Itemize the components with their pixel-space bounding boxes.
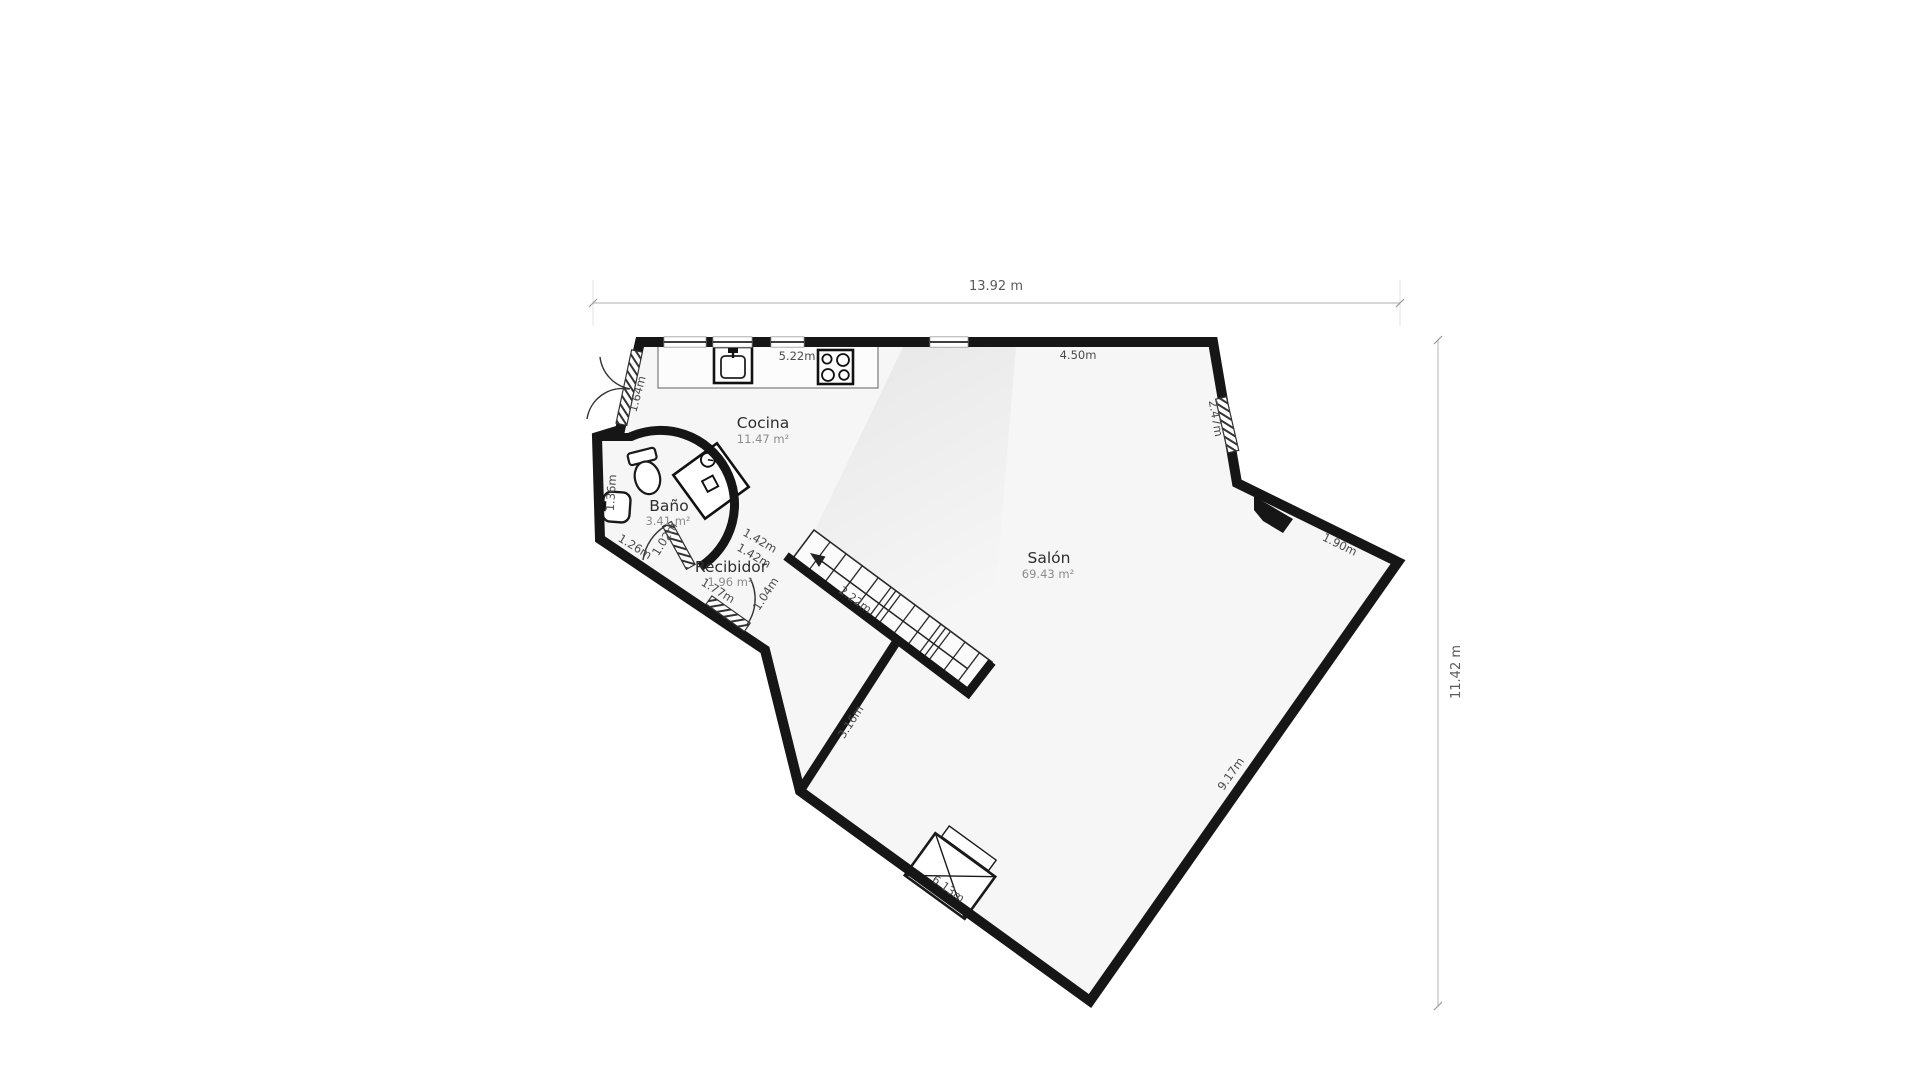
floor-plan-page: 13.92 m 11.42 m 5.22m 4.50m 1.64m 2.47m …	[0, 0, 1920, 1080]
window-icon	[930, 337, 968, 347]
window-icon	[664, 337, 706, 347]
kitchen-counter	[658, 346, 878, 388]
dim-bano-west-wall: 1.36m	[603, 474, 620, 512]
dim-top-window-wall: 5.22m	[779, 349, 816, 363]
room-label-salon: Salón	[1028, 549, 1071, 567]
top-dimension-line: 13.92 m	[589, 279, 1404, 326]
room-area-cocina: 11.47 m²	[737, 432, 789, 446]
room-area-salon: 69.43 m²	[1022, 567, 1074, 581]
floor-slab	[597, 342, 1398, 1001]
room-label-cocina: Cocina	[737, 414, 789, 432]
overall-width-label: 13.92 m	[969, 279, 1023, 294]
room-area-bano: 3.41 m²	[645, 514, 690, 528]
window-icon	[713, 337, 752, 347]
sink-icon	[714, 347, 752, 383]
window-icon	[771, 337, 804, 347]
right-dimension-line: 11.42 m	[1434, 336, 1464, 1010]
overall-height-label: 11.42 m	[1449, 645, 1464, 699]
floor-plan-canvas: 13.92 m 11.42 m 5.22m 4.50m 1.64m 2.47m …	[0, 0, 1920, 1080]
dim-top-right-wall: 4.50m	[1060, 348, 1097, 362]
room-label-bano: Baño	[649, 497, 688, 515]
stove-icon	[818, 350, 853, 384]
room-label-recibidor: Recibidor	[695, 558, 768, 576]
room-area-recibidor: 1.96 m²	[707, 575, 752, 589]
